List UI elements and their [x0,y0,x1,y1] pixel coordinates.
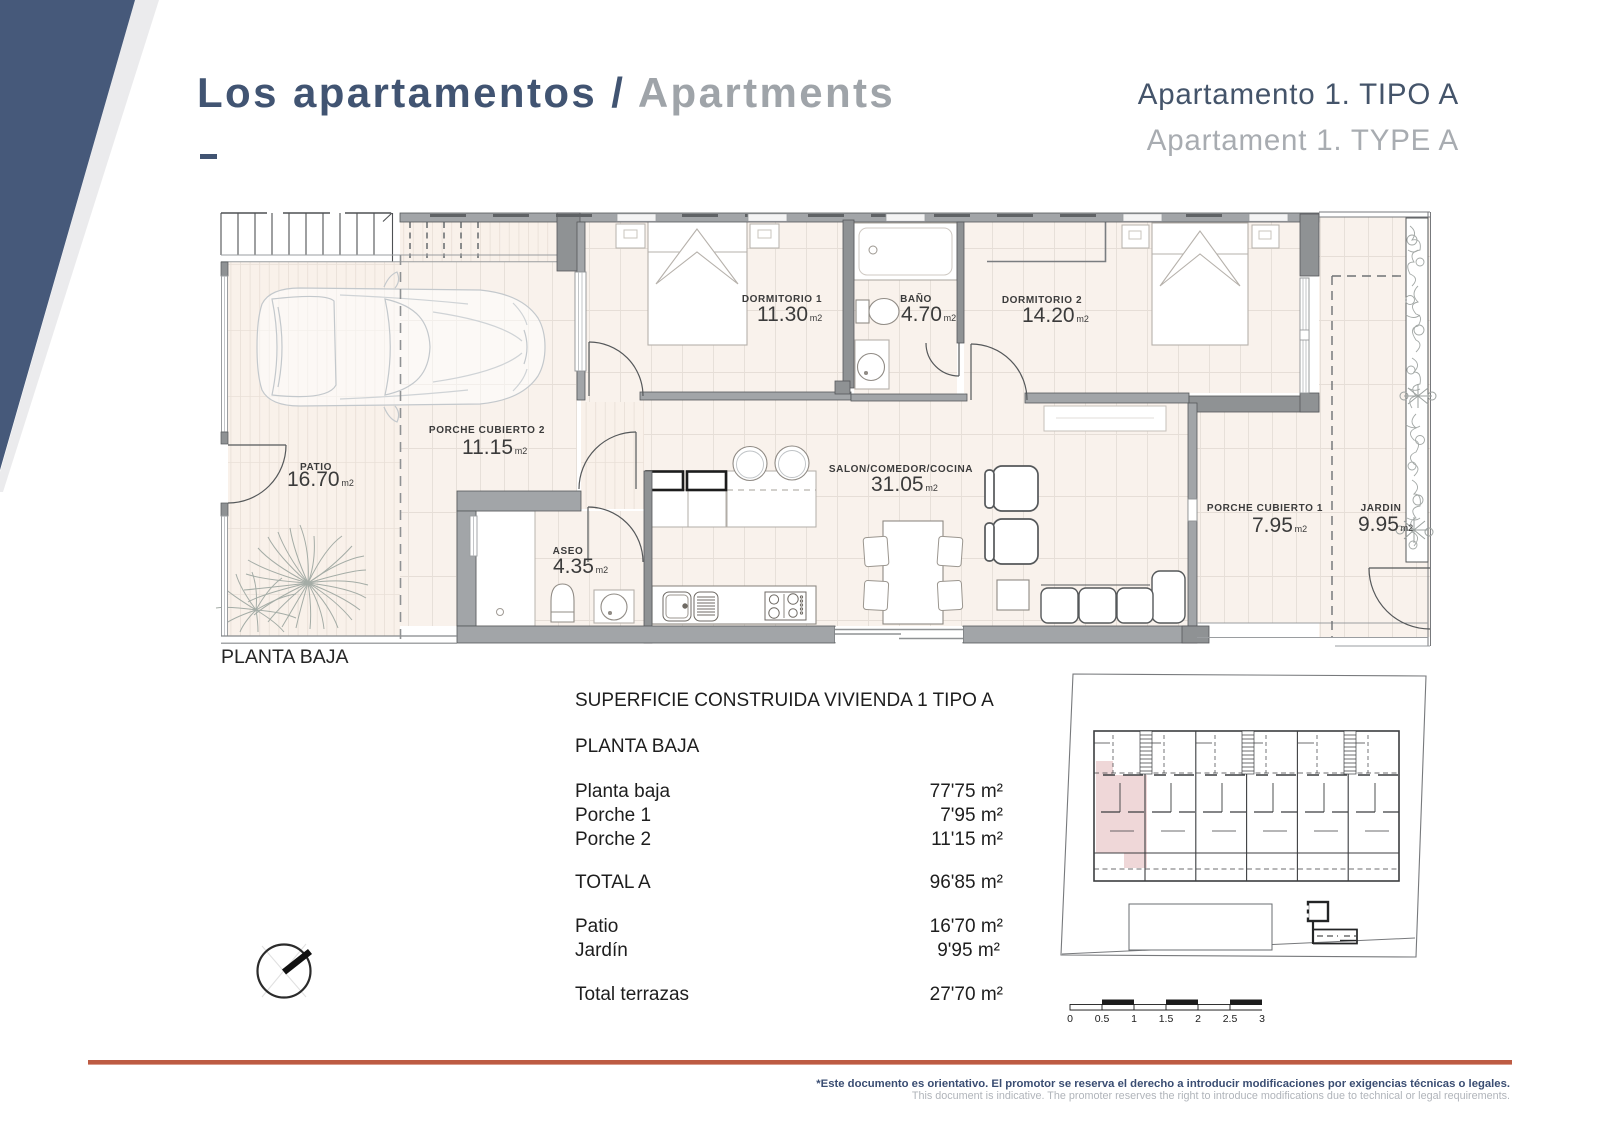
svg-text:Porche 2: Porche 2 [575,829,651,850]
svg-text:PLANTA BAJA: PLANTA BAJA [221,646,349,668]
svg-text:Apartament 1. TYPE A: Apartament 1. TYPE A [1147,124,1459,157]
svg-text:PLANTA BAJA: PLANTA BAJA [575,736,700,757]
svg-text:77'75 m²: 77'75 m² [930,781,1003,802]
svg-text:9'95 m²: 9'95 m² [937,940,1000,961]
svg-text:0.5: 0.5 [1095,1013,1110,1025]
svg-text:Jardín: Jardín [575,940,628,961]
svg-text:3: 3 [1259,1013,1265,1025]
svg-text:1: 1 [1131,1013,1137,1025]
svg-text:Porche 1: Porche 1 [575,805,651,826]
svg-text:Planta baja: Planta baja [575,781,671,802]
svg-text:TOTAL A: TOTAL A [575,872,651,893]
svg-text:Patio: Patio [575,916,618,937]
svg-text:Apartamento 1. TIPO A: Apartamento 1. TIPO A [1138,78,1459,111]
svg-text:0: 0 [1067,1013,1073,1025]
svg-text:Los apartamentos / Apartments: Los apartamentos / Apartments [197,69,895,116]
svg-text:SUPERFICIE CONSTRUIDA VIVIENDA: SUPERFICIE CONSTRUIDA VIVIENDA 1 TIPO A [575,690,994,711]
svg-text:*Este documento es orientativo: *Este documento es orientativo. El promo… [816,1078,1510,1090]
svg-text:11'15 m²: 11'15 m² [931,829,1003,850]
svg-text:Total terrazas: Total terrazas [575,984,689,1005]
svg-text:7'95 m²: 7'95 m² [940,805,1003,826]
svg-text:2: 2 [1195,1013,1201,1025]
svg-text:This document is indicative. T: This document is indicative. The promote… [912,1090,1510,1102]
svg-text:PORCHE CUBIERTO 2: PORCHE CUBIERTO 2 [429,425,545,436]
svg-text:2.5: 2.5 [1223,1013,1238,1025]
svg-text:16'70 m²: 16'70 m² [930,916,1003,937]
svg-text:PORCHE CUBIERTO 1: PORCHE CUBIERTO 1 [1207,503,1323,514]
svg-text:27'70 m²: 27'70 m² [930,984,1003,1005]
svg-text:1.5: 1.5 [1159,1013,1174,1025]
svg-text:96'85 m²: 96'85 m² [930,872,1003,893]
